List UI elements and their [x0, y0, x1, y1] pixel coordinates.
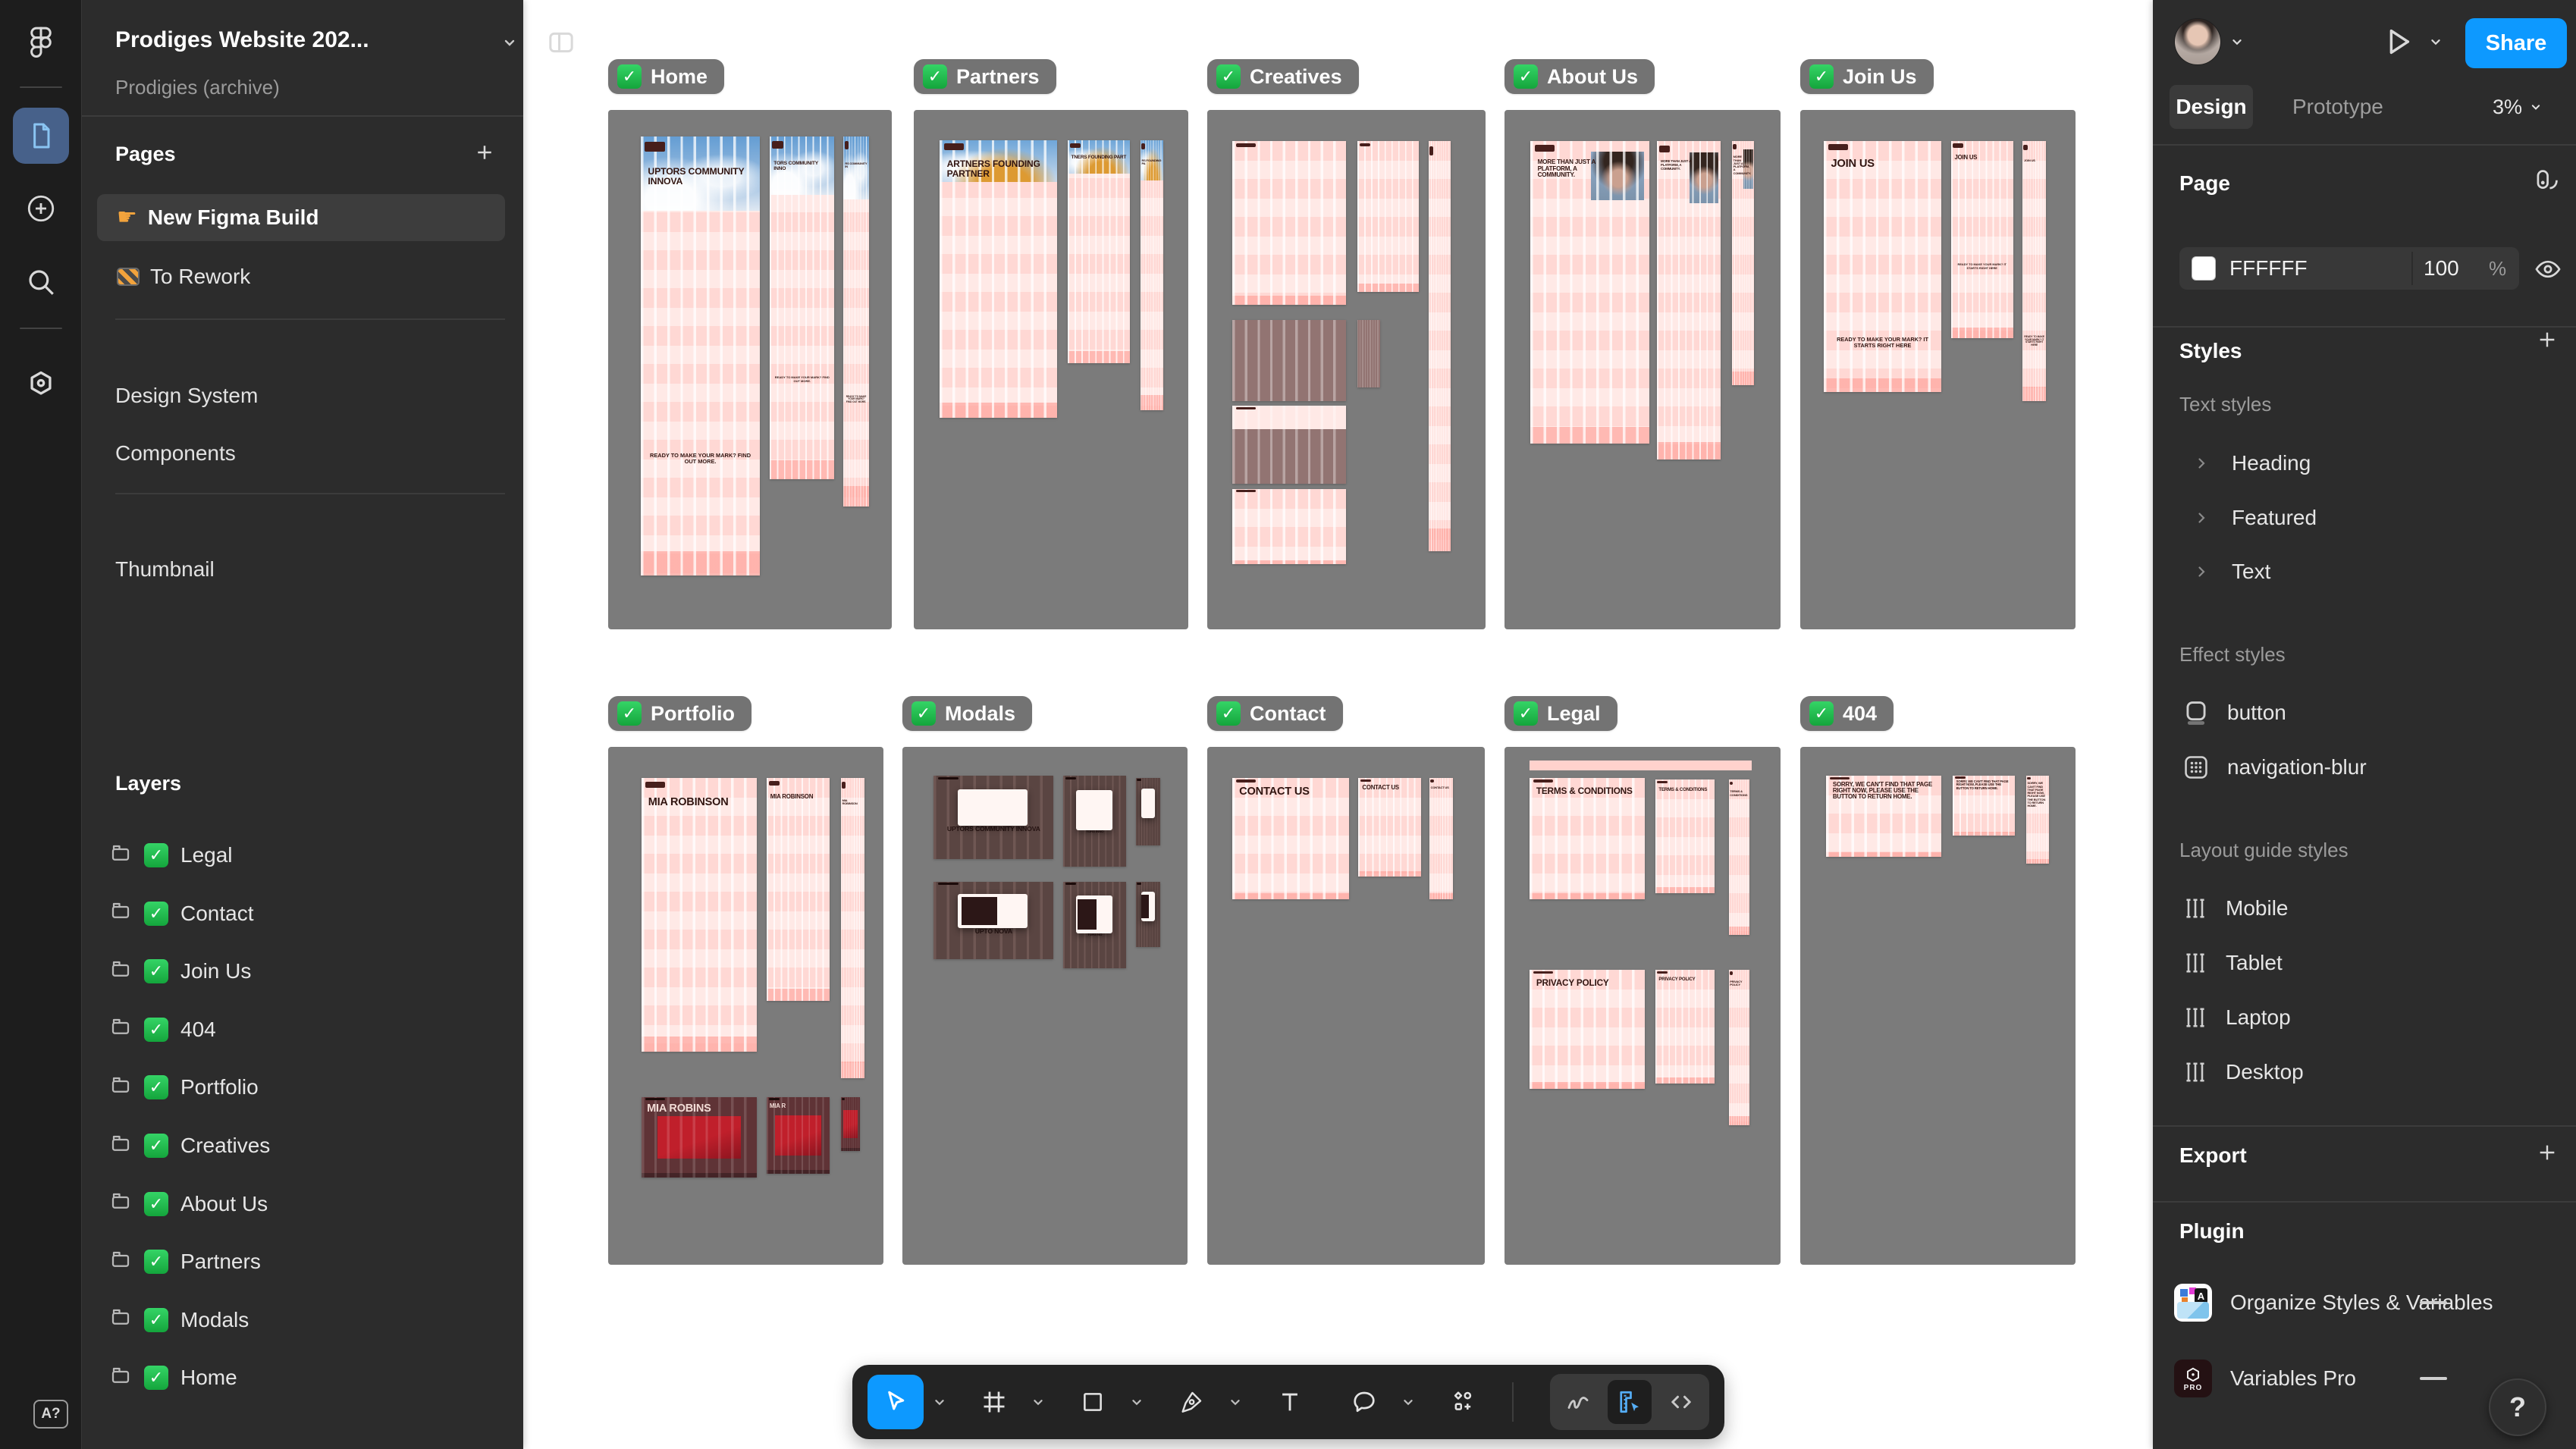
section-icon [109, 1248, 132, 1276]
column-guides [1358, 778, 1420, 877]
chevron-down-icon[interactable] [931, 1394, 948, 1410]
section-frame-contact[interactable]: CONTACT USCONTACT USCONTACT US [1207, 747, 1485, 1265]
section-icon [109, 1015, 132, 1043]
layout-style-desktop[interactable]: Desktop [2153, 1046, 2576, 1098]
chevron-down-icon[interactable] [1030, 1394, 1046, 1410]
chevron-right-icon[interactable] [2192, 454, 2210, 472]
thumb-headline: CONTACT US [1239, 786, 1341, 798]
page-thumbnail[interactable]: JOIN USREADY TO MAKE YOUR MARK? IT START… [2022, 141, 2046, 401]
thumb-footer [1429, 893, 1453, 900]
column-guides [1357, 320, 1379, 387]
check-emoji-icon: ✓ [1514, 701, 1538, 726]
page-thumbnail[interactable]: TORS NO [1063, 882, 1126, 968]
thumb-footer [1826, 852, 1941, 857]
add-style-icon[interactable] [2535, 328, 2559, 356]
thumb-footer [767, 989, 830, 1001]
effect-style-button[interactable]: button [2153, 687, 2576, 739]
thumb-footer [1530, 893, 1645, 900]
thumb-headline: MIA ROBINSON [842, 799, 863, 805]
thumb-navbar [1429, 146, 1433, 155]
page-thumbnail[interactable]: SORRY, WE CAN'T FIND THAT PAGE RIGHT NOW… [1826, 776, 1941, 857]
section-label-creatives[interactable]: ✓Creatives [1207, 59, 1359, 94]
section-label-partners[interactable]: ✓Partners [914, 59, 1056, 94]
chevron-down-icon[interactable] [1128, 1394, 1145, 1410]
red-photo [843, 1110, 857, 1138]
portrait-photo [1690, 152, 1718, 203]
check-emoji-icon: ✓ [144, 1250, 168, 1274]
chevron-right-icon[interactable] [2192, 509, 2210, 527]
section-icon [109, 899, 132, 927]
check-emoji-icon: ✓ [1809, 64, 1834, 89]
thumb-footer [1657, 442, 1721, 459]
thumb-navbar [645, 1098, 665, 1100]
organize-plugin-icon: A [2174, 1284, 2212, 1322]
section-label-contact[interactable]: ✓Contact [1207, 696, 1343, 731]
thumb-headline: TNERS FOUNDING PART [1072, 155, 1127, 161]
thumb-navbar [1236, 779, 1256, 783]
actions-tool[interactable] [1435, 1375, 1491, 1429]
column-guides [1729, 970, 1750, 1125]
column-guides [1141, 140, 1163, 410]
thumb-navbar [645, 782, 665, 788]
thumb-headline: TORS NO [1066, 933, 1124, 937]
blur-icon [2182, 753, 2210, 782]
thumb-footer [1232, 893, 1349, 900]
section-frame-partners[interactable]: ARTNERS FOUNDING PARTNERTNERS FOUNDING P… [914, 110, 1188, 629]
section-frame-portfolio[interactable]: MIA ROBINSONMIA ROBINSONMIA ROBINSONMIA … [608, 747, 883, 1265]
opacity-percent-label: % [2489, 247, 2506, 290]
thumb-footer [1358, 871, 1420, 877]
column-guides [841, 778, 864, 1078]
style-label: button [2227, 701, 2286, 725]
page-thumbnail[interactable]: RS COMMUNITY INREADY TO MAKE YOUR MARK? … [843, 136, 868, 507]
check-emoji-icon: ✓ [144, 1366, 168, 1390]
opacity-value[interactable]: 100 [2424, 247, 2484, 290]
text-style-text[interactable]: Text [2153, 547, 2576, 597]
layer-label: Legal [180, 843, 233, 867]
file-subtitle: Prodigies (archive) [115, 76, 280, 99]
page-item-to-rework[interactable]: To Rework [97, 253, 505, 300]
column-grid-icon [2182, 1059, 2209, 1086]
page-thumbnail[interactable]: UPTO NOVA [933, 882, 1053, 959]
thumb-navbar [1236, 143, 1256, 147]
divider [115, 493, 505, 494]
draw-mode-button[interactable] [1556, 1380, 1600, 1424]
section-label-text: About Us [1547, 65, 1638, 89]
layer-row-about-us[interactable]: ✓About Us [109, 1180, 504, 1228]
canvas[interactable]: ✓HomeUPTORS COMMUNITY INNOVAREADY TO MAK… [523, 0, 2153, 1449]
shape-tool[interactable] [1065, 1375, 1121, 1429]
thumb-headline: MORE THAN JUST A PLATFORM, A COMMUNITY. [1538, 159, 1597, 179]
help-button[interactable]: ? [2489, 1378, 2546, 1436]
section-label-home[interactable]: ✓Home [608, 59, 724, 94]
figma-logo-icon[interactable] [23, 23, 59, 59]
page-thumbnail[interactable]: CONTACT US [1358, 778, 1420, 877]
layout-style-laptop[interactable]: Laptop [2153, 992, 2576, 1043]
file-title[interactable]: Prodiges Website 202... [115, 27, 369, 53]
thumb-subheadline: READY TO MAKE YOUR MARK? IT STARTS RIGHT… [1954, 263, 2010, 270]
page-thumbnail[interactable]: MIA ROBINSON [767, 778, 830, 1001]
page-thumbnail[interactable] [1232, 320, 1346, 400]
right-panel: Share Design Prototype 3% Page FFFFFF 10… [2153, 0, 2576, 1449]
page-thumbnail[interactable]: TORS INNO [1063, 776, 1126, 867]
style-label: Text [2232, 560, 2270, 584]
visibility-eye-icon[interactable] [2534, 255, 2562, 287]
thumb-navbar [1533, 779, 1553, 783]
text-style-featured[interactable]: Featured [2153, 493, 2576, 543]
layer-label: 404 [180, 1018, 216, 1042]
layer-row-partners[interactable]: ✓Partners [109, 1237, 504, 1286]
thumb-navbar [645, 142, 665, 152]
thumb-footer [940, 403, 1057, 418]
thumb-navbar [845, 141, 849, 149]
page-thumbnail[interactable] [1232, 406, 1346, 484]
section-icon [109, 842, 132, 870]
avatar[interactable] [2174, 18, 2221, 65]
column-grid-icon [2182, 1004, 2209, 1031]
thumb-footer [1732, 372, 1754, 385]
section-frame-about-us[interactable]: MORE THAN JUST A PLATFORM, A COMMUNITY.M… [1504, 110, 1781, 629]
thumb-headline: PRIVACY POLICY [1536, 978, 1638, 988]
section-label-legal[interactable]: ✓Legal [1504, 696, 1617, 731]
layer-label: Home [180, 1366, 237, 1390]
thumb-subheadline: READY TO MAKE YOUR MARK? FIND OUT MORE. [648, 453, 752, 466]
page-thumbnail[interactable]: TERMS & CONDITIONS [1729, 779, 1750, 935]
chevron-down-icon [2528, 99, 2543, 114]
page-thumbnail[interactable]: PRIVACY POLICY [1530, 970, 1645, 1089]
thumb-navbar [1070, 143, 1081, 148]
section-frame-modals[interactable]: UPTORS COMMUNITY INNOVATORS INNOUPTO NOV… [902, 747, 1188, 1265]
page-thumbnail[interactable]: MIA ROBINSON [841, 778, 864, 1078]
chevron-down-icon[interactable] [500, 33, 519, 55]
color-swatch[interactable] [2192, 256, 2216, 281]
page-thumbnail[interactable]: SORRY, WE CAN'T FIND THAT PAGE RIGHT NOW… [1953, 776, 2015, 836]
page-thumbnail[interactable] [1429, 141, 1451, 551]
variables-pro-plugin-icon: PRO [2174, 1360, 2212, 1397]
sidebar-item-thumbnail[interactable]: Thumbnail [115, 557, 215, 582]
layer-row-creatives[interactable]: ✓Creatives [109, 1121, 504, 1170]
thumb-headline: MIA R [770, 1103, 814, 1109]
layer-label: Join Us [180, 959, 251, 983]
plugin-label: Variables Pro [2230, 1366, 2356, 1391]
column-guides [1951, 141, 2013, 338]
thumb-footer [1068, 351, 1131, 363]
shadow-icon [2182, 698, 2210, 727]
thumb-subheadline: READY TO MAKE YOUR MARK? IT STARTS RIGHT… [1831, 337, 1934, 349]
export-header: Export [2179, 1143, 2247, 1168]
thumb-footer [767, 1170, 830, 1175]
layer-label: Modals [180, 1308, 249, 1332]
section-label-404[interactable]: ✓404 [1800, 696, 1894, 731]
pen-tool[interactable] [1163, 1375, 1219, 1429]
layer-label: Creatives [180, 1134, 270, 1158]
layer-row-home[interactable]: ✓Home [109, 1353, 504, 1402]
toolbar-modes [1550, 1374, 1709, 1430]
page-section-title: Page [2179, 171, 2230, 196]
page-thumbnail[interactable] [1232, 141, 1346, 305]
dev-code-mode-button[interactable] [1659, 1380, 1703, 1424]
remove-plugin-icon[interactable] [2420, 1377, 2447, 1380]
layer-row-portfolio[interactable]: ✓Portfolio [109, 1063, 504, 1112]
check-emoji-icon: ✓ [617, 64, 642, 89]
column-guides [1232, 141, 1346, 305]
page-thumbnail[interactable] [1136, 882, 1159, 948]
thumb-navbar [1657, 781, 1667, 783]
rail-divider [20, 86, 62, 88]
check-emoji-icon: ✓ [1514, 64, 1538, 89]
layer-label: Portfolio [180, 1075, 259, 1099]
layer-row-join-us[interactable]: ✓Join Us [109, 947, 504, 996]
chevron-down-icon[interactable] [2427, 33, 2444, 54]
thumb-footer [1729, 1116, 1750, 1124]
move-tool[interactable] [868, 1375, 924, 1429]
check-emoji-icon: ✓ [923, 64, 947, 89]
column-guides [1068, 140, 1131, 364]
page-thumbnail[interactable]: MORE THAN JUST A PLATFORM, A COMMUNITY. [1530, 141, 1649, 444]
page-item-new-figma-build[interactable]: ☛New Figma Build [97, 194, 505, 241]
add-icon[interactable] [24, 192, 58, 225]
column-guides [1530, 778, 1645, 900]
section-icon [109, 1132, 132, 1160]
column-guides [1232, 320, 1346, 400]
page-color-control[interactable]: FFFFFF 100 % [2179, 247, 2519, 290]
thumb-headline: MORE THAN JUST A PLATFORM, A COMMUNITY. [1734, 155, 1745, 174]
page-thumbnail[interactable]: SORRY, WE CAN'T FIND THAT PAGE RIGHT NOW… [2026, 776, 2049, 864]
column-guides [1232, 406, 1346, 484]
thumb-footer [841, 1148, 860, 1151]
page-thumbnail[interactable] [1232, 489, 1346, 564]
page-thumbnail[interactable]: MORE THAN JUST A PLATFORM, A COMMUNITY. [1732, 141, 1754, 385]
page-thumbnail[interactable]: CONTACT US [1232, 778, 1349, 900]
thumb-navbar [1360, 779, 1371, 782]
thumb-footer [770, 460, 834, 479]
page-thumbnail[interactable]: JOIN USREADY TO MAKE YOUR MARK? IT START… [1951, 141, 2013, 338]
thumb-headline: TERMS & CONDITIONS [1730, 790, 1748, 796]
add-export-icon[interactable] [2535, 1140, 2559, 1168]
thumb-headline: TORS INNO [1066, 830, 1124, 834]
layout-style-mobile[interactable]: Mobile [2153, 883, 2576, 934]
thumb-footer [1824, 378, 1941, 392]
page-thumbnail[interactable] [1357, 320, 1379, 387]
section-label-portfolio[interactable]: ✓Portfolio [608, 696, 751, 731]
remove-plugin-icon[interactable] [2420, 1301, 2447, 1304]
thumb-navbar [1430, 779, 1434, 783]
section-icon [109, 1364, 132, 1392]
page-thumbnail[interactable]: PRIVACY POLICY [1655, 970, 1715, 1084]
tab-prototype[interactable]: Prototype [2274, 85, 2402, 129]
style-label: Mobile [2226, 896, 2288, 921]
column-grid-icon [2182, 949, 2209, 977]
collapse-panel-icon[interactable] [546, 27, 576, 61]
share-button[interactable]: Share [2465, 18, 2567, 68]
color-hex-value[interactable]: FFFFFF [2229, 247, 2308, 290]
page-thumbnail[interactable]: TORS COMMUNITY INNOREADY TO MAKE YOUR MA… [770, 136, 834, 479]
thumb-navbar [842, 1098, 845, 1100]
page-thumbnail[interactable]: MIA ROBINSON [642, 778, 757, 1052]
page-thumbnail[interactable]: MIA R [767, 1097, 830, 1175]
thumb-headline: UPTO NOVA [939, 928, 1049, 935]
chevron-down-icon[interactable] [1227, 1394, 1244, 1410]
section-frame-legal[interactable]: TERMS & CONDITIONSTERMS & CONDITIONSTERM… [1504, 747, 1781, 1265]
thumb-navbar [1141, 143, 1145, 149]
thumb-headline: UPTORS COMMUNITY INNOVA [939, 826, 1049, 833]
section-label-text: Home [651, 65, 708, 89]
section-frame-home[interactable]: UPTORS COMMUNITY INNOVAREADY TO MAKE YOU… [608, 110, 892, 629]
divider [2153, 1125, 2576, 1127]
page-thumbnail[interactable] [1530, 761, 1752, 771]
style-label: navigation-blur [2227, 755, 2367, 779]
thumb-footer [641, 551, 760, 576]
chevron-down-icon[interactable] [1400, 1394, 1417, 1410]
thumb-navbar [2027, 777, 2031, 779]
column-guides [2022, 141, 2046, 401]
layer-row-contact[interactable]: ✓Contact [109, 889, 504, 938]
thumb-headline: RS COMMUNITY IN [845, 162, 867, 168]
tab-design[interactable]: Design [2170, 85, 2253, 129]
page-thumbnail[interactable]: ARTNERS FOUNDING PARTNER [940, 140, 1057, 418]
check-emoji-icon: ✓ [1216, 701, 1241, 726]
layer-label: About Us [180, 1192, 268, 1216]
search-icon[interactable] [24, 265, 58, 299]
text-style-heading[interactable]: Heading [2153, 438, 2576, 488]
column-guides [1429, 141, 1451, 551]
column-guides [1357, 141, 1419, 292]
check-emoji-icon: ✓ [617, 701, 642, 726]
check-emoji-icon: ✓ [1216, 64, 1241, 89]
chevron-down-icon[interactable] [2229, 33, 2245, 54]
layer-row-modals[interactable]: ✓Modals [109, 1296, 504, 1344]
thumb-navbar [1236, 407, 1256, 409]
thumb-navbar [1236, 490, 1256, 492]
frame-tool[interactable] [966, 1375, 1022, 1429]
thumb-headline: TERMS & CONDITIONS [1658, 788, 1711, 792]
add-page-icon[interactable] [473, 141, 496, 168]
check-emoji-icon: ✓ [144, 1308, 168, 1332]
thumb-subheadline: READY TO MAKE YOUR MARK? IT STARTS RIGHT… [2024, 336, 2044, 347]
thumb-footer [843, 486, 868, 507]
section-icon [109, 1306, 132, 1334]
layer-label: Contact [180, 902, 254, 926]
text-tool[interactable] [1262, 1375, 1318, 1429]
section-label-text: Partners [956, 65, 1040, 89]
styles-header: Styles [2179, 326, 2242, 376]
page-thumbnail[interactable]: UPTORS COMMUNITY INNOVAREADY TO MAKE YOU… [641, 136, 760, 576]
modal-dialog [958, 789, 1028, 826]
chevron-right-icon[interactable] [2192, 563, 2210, 581]
sidebar-item-components[interactable]: Components [115, 441, 236, 466]
thumb-headline: ARTNERS FOUNDING PARTNER [947, 159, 1050, 179]
comment-tool[interactable] [1336, 1375, 1392, 1429]
page-thumbnail[interactable]: MIA ROBINS [642, 1097, 757, 1178]
thumb-footer [2026, 859, 2049, 864]
section-label-text: Creatives [1250, 65, 1342, 89]
page-item-label: To Rework [150, 265, 250, 289]
layout-style-tablet[interactable]: Tablet [2153, 937, 2576, 989]
page-thumbnail[interactable] [1136, 778, 1159, 845]
sidebar-item-design-system[interactable]: Design System [115, 384, 258, 408]
thumb-footer [1429, 528, 1451, 551]
thumb-footer [1232, 560, 1346, 564]
thumb-headline: UPTORS COMMUNITY INNOVA [648, 167, 752, 187]
thumb-navbar [1733, 144, 1737, 149]
thumb-headline: JOIN US [2024, 159, 2044, 162]
layers-header: Layers [115, 772, 181, 795]
page-thumbnail[interactable] [841, 1097, 860, 1151]
divider [2153, 1201, 2576, 1203]
assets-icon[interactable] [24, 367, 58, 402]
red-photo [657, 1116, 741, 1158]
section-label-text: Join Us [1843, 65, 1917, 89]
portrait-photo [1743, 149, 1753, 189]
thumb-navbar [1953, 143, 1963, 148]
page-thumbnail[interactable] [1357, 141, 1419, 292]
page-thumbnail[interactable]: TNERS FOUNDING PART [1068, 140, 1131, 364]
page-thumbnail[interactable]: PRIVACY POLICY [1729, 970, 1750, 1125]
column-guides [1429, 778, 1453, 900]
modal-dialog [1076, 895, 1112, 933]
plugin-row-organize-styles-variables[interactable]: AOrganize Styles & Variables [2153, 1271, 2576, 1335]
thumb-footer [2022, 387, 2046, 401]
effect-styles-header: Effect styles [2179, 643, 2286, 666]
thumb-navbar [1657, 971, 1667, 974]
thumb-navbar [1535, 145, 1555, 152]
check-emoji-icon: ✓ [144, 959, 168, 983]
layer-row-legal[interactable]: ✓Legal [109, 831, 504, 880]
section-frame-404[interactable]: SORRY, WE CAN'T FIND THAT PAGE RIGHT NOW… [1800, 747, 2076, 1265]
construction-icon [117, 268, 140, 286]
section-label-about-us[interactable]: ✓About Us [1504, 59, 1655, 94]
measure-mode-button[interactable] [1608, 1380, 1652, 1424]
present-play-icon[interactable] [2380, 24, 2415, 63]
column-grid-icon [2182, 895, 2209, 922]
page-thumbnail[interactable]: JOIN USREADY TO MAKE YOUR MARK? IT START… [1824, 141, 1941, 392]
file-browser-icon[interactable] [13, 108, 69, 164]
page-thumbnail[interactable]: TERMS & CONDITIONS [1530, 778, 1645, 900]
left-sidebar: Prodiges Website 202... Prodigies (archi… [82, 0, 523, 1449]
section-label-modals[interactable]: ✓Modals [902, 696, 1032, 731]
section-label-join-us[interactable]: ✓Join Us [1800, 59, 1934, 94]
column-guides [1232, 489, 1346, 564]
missing-fonts-indicator[interactable]: A? [33, 1400, 68, 1429]
thumb-navbar [1659, 146, 1670, 152]
check-emoji-icon: ✓ [144, 902, 168, 926]
zoom-control[interactable]: 3% [2493, 85, 2543, 129]
section-frame-join-us[interactable]: JOIN USREADY TO MAKE YOUR MARK? IT START… [1800, 110, 2076, 629]
page-thumbnail[interactable]: MORE THAN JUST A PLATFORM, A COMMUNITY. [1657, 141, 1721, 459]
thumb-footer [1232, 296, 1346, 305]
rail-divider [20, 328, 62, 329]
section-icon [109, 1074, 132, 1102]
thumb-footer [1951, 328, 2013, 338]
page-thumbnail[interactable]: RS FOUNDING PA [1141, 140, 1163, 410]
thumb-footer [1530, 1082, 1645, 1089]
check-emoji-icon: ✓ [144, 843, 168, 867]
divider [2411, 252, 2413, 285]
section-frame-creatives[interactable] [1207, 110, 1486, 629]
plugin-label: Organize Styles & Variables [2230, 1291, 2493, 1315]
page-thumbnail[interactable]: UPTORS COMMUNITY INNOVA [933, 776, 1053, 858]
page-thumbnail[interactable]: TERMS & CONDITIONS [1655, 779, 1715, 893]
thumb-headline: PRIVACY POLICY [1658, 977, 1711, 982]
thumb-headline: SORRY, WE CAN'T FIND THAT PAGE RIGHT NOW… [2027, 782, 2047, 808]
layer-row-404[interactable]: ✓404 [109, 1005, 504, 1054]
swap-page-style-icon[interactable] [2532, 167, 2561, 199]
thumb-footer [1729, 927, 1750, 935]
effect-style-navigation-blur[interactable]: navigation-blur [2153, 742, 2576, 793]
figma-app: A? Prodiges Website 202... Prodigies (ar… [0, 0, 2576, 1449]
page-thumbnail[interactable]: CONTACT US [1429, 778, 1453, 900]
thumb-subheadline: READY TO MAKE YOUR MARK? FIND OUT MORE. [845, 396, 867, 404]
